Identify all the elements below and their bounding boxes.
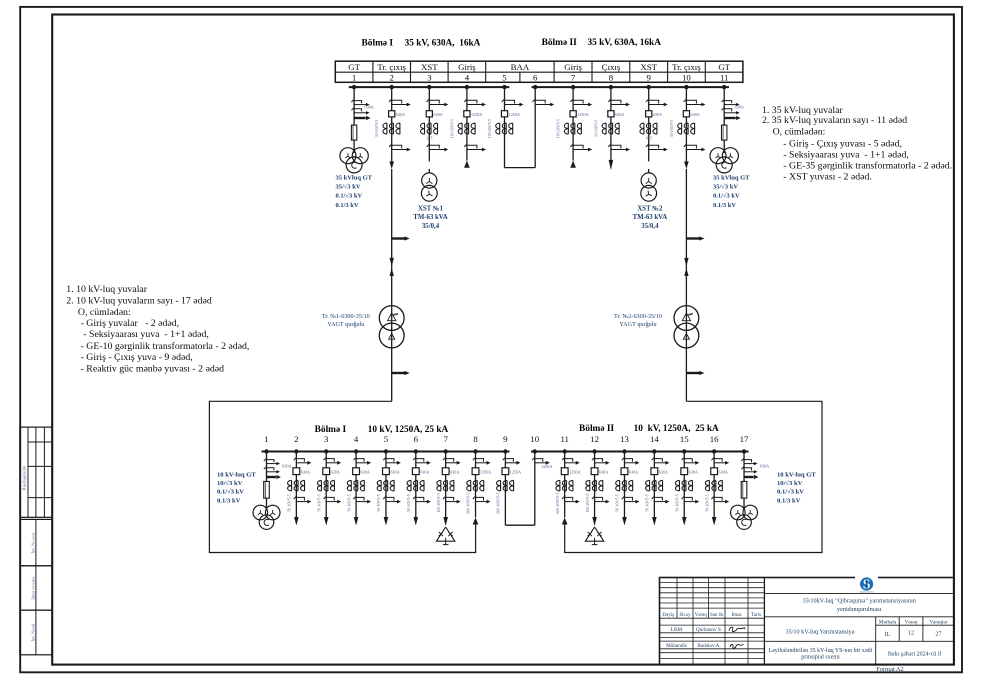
svg-text:Format A2: Format A2 <box>876 666 904 673</box>
svg-text:İmza: İmza <box>732 612 743 618</box>
svg-text:100-200/5-5: 100-200/5-5 <box>437 493 441 512</box>
svg-text:- Reaktiv güc mənbə yuvası - 2: - Reaktiv güc mənbə yuvası - 2 ədəd <box>81 364 224 375</box>
svg-text:10: 10 <box>682 73 691 83</box>
svg-text:35/0,4: 35/0,4 <box>641 223 659 230</box>
svg-text:Sən №: Sən № <box>710 612 724 618</box>
svg-text:10 kV, 1250A, 25 kA: 10 kV, 1250A, 25 kA <box>634 424 719 434</box>
svg-text:50-100/5-5: 50-100/5-5 <box>288 494 292 511</box>
svg-text:İL: İL <box>885 631 891 638</box>
svg-text:15: 15 <box>680 434 689 444</box>
svg-text:50-100/5-5: 50-100/5-5 <box>317 494 321 511</box>
svg-text:0.1/√3 kV: 0.1/√3 kV <box>713 192 740 200</box>
svg-text:630A: 630A <box>615 112 624 117</box>
svg-text:Bölmə II: Bölmə II <box>579 424 615 434</box>
svg-text:10 kV-luq GT: 10 kV-luq GT <box>777 472 816 479</box>
svg-text:TM-63 kVA: TM-63 kVA <box>413 214 448 221</box>
svg-text:2: 2 <box>294 434 298 444</box>
svg-text:2: 2 <box>389 73 393 83</box>
svg-text:17: 17 <box>740 434 749 444</box>
svg-text:- Seksiyaarası yuva - 1+1 ədə: - Seksiyaarası yuva - 1+1 ədəd, <box>783 150 909 161</box>
svg-text:50-100/5-5: 50-100/5-5 <box>675 494 679 511</box>
svg-text:9: 9 <box>646 73 651 83</box>
svg-text:O, cümlədən:: O, cümlədən: <box>78 307 131 318</box>
svg-text:Çıxış: Çıxış <box>602 62 621 72</box>
svg-text:30-100/5-5: 30-100/5-5 <box>670 120 674 137</box>
svg-text:Mühəndis: Mühəndis <box>666 643 687 649</box>
svg-text:Sh.sy: Sh.sy <box>680 613 691 618</box>
svg-text:630A: 630A <box>365 105 374 110</box>
svg-text:10/5: 10/5 <box>426 137 433 141</box>
svg-text:Vərəq: Vərəq <box>695 613 708 618</box>
svg-text:630A: 630A <box>396 112 405 117</box>
svg-text:100-200/5-5: 100-200/5-5 <box>586 493 590 512</box>
svg-text:30-100/5-5: 30-100/5-5 <box>594 120 598 137</box>
svg-text:Tr. №2-6300-35/10: Tr. №2-6300-35/10 <box>614 313 662 320</box>
svg-text:Bədəlov A.: Bədəlov A. <box>697 643 720 649</box>
svg-text:0.1/√3 kV: 0.1/√3 kV <box>217 488 244 496</box>
svg-text:XST: XST <box>640 62 657 72</box>
svg-text:Dəyiş: Dəyiş <box>662 613 674 618</box>
svg-text:630A: 630A <box>390 469 399 474</box>
svg-text:630A: 630A <box>719 469 728 474</box>
svg-text:Bölmə I: Bölmə I <box>315 425 347 435</box>
svg-text:1250A: 1250A <box>569 469 580 474</box>
svg-text:YAGT qurğulu: YAGT qurğulu <box>619 321 656 328</box>
svg-text:Mərhələ: Mərhələ <box>879 620 897 626</box>
svg-text:1250A: 1250A <box>471 112 482 117</box>
svg-text:1: 1 <box>352 73 356 83</box>
svg-text:12: 12 <box>908 631 914 637</box>
svg-text:630A: 630A <box>760 464 769 469</box>
svg-text:27: 27 <box>935 632 941 638</box>
svg-text:11: 11 <box>720 73 728 83</box>
svg-text:- Giriş - Çıxış yuvası - 5 ədə: - Giriş - Çıxış yuvası - 5 ədəd, <box>783 139 902 150</box>
svg-text:4: 4 <box>354 434 359 444</box>
svg-text:35 kV, 630A, 16kA: 35 kV, 630A, 16kA <box>405 39 481 49</box>
svg-text:35/√3 kV: 35/√3 kV <box>713 183 738 191</box>
svg-text:630A: 630A <box>282 464 291 469</box>
svg-text:7: 7 <box>571 73 576 83</box>
svg-text:Bakı şəhəri 2024-cü il: Bakı şəhəri 2024-cü il <box>888 651 941 657</box>
svg-text:1250A: 1250A <box>510 469 521 474</box>
svg-text:Layihələndirilən 35 kV-luq YS-: Layihələndirilən 35 kV-luq YS-nın bir xə… <box>768 648 872 654</box>
svg-text:0.1/√3 kV: 0.1/√3 kV <box>336 192 363 200</box>
svg-text:630A: 630A <box>653 112 662 117</box>
svg-text:6: 6 <box>414 434 419 444</box>
svg-text:- XST yuvası - 2 ədəd.: - XST yuvası - 2 ədəd. <box>783 172 872 183</box>
svg-text:GT: GT <box>348 62 360 72</box>
svg-text:Bölmə II: Bölmə II <box>542 38 578 48</box>
svg-text:13: 13 <box>620 434 629 444</box>
svg-text:3: 3 <box>427 73 432 83</box>
svg-text:4: 4 <box>465 73 470 83</box>
svg-text:5: 5 <box>502 73 507 83</box>
svg-text:35/√3 kV: 35/√3 kV <box>336 183 361 191</box>
svg-text:630A: 630A <box>599 469 608 474</box>
svg-text:LBM: LBM <box>671 627 683 633</box>
svg-text:16: 16 <box>710 434 719 444</box>
svg-text:50-100/5-5: 50-100/5-5 <box>377 494 381 511</box>
svg-text:600-1000/5-5: 600-1000/5-5 <box>556 492 560 513</box>
svg-text:0.1/3 kV: 0.1/3 kV <box>336 202 359 209</box>
svg-text:GT: GT <box>718 62 730 72</box>
svg-text:35/10 kV-luq Yarımstansiya: 35/10 kV-luq Yarımstansiya <box>785 629 854 636</box>
svg-text:BAA: BAA <box>511 62 530 72</box>
svg-text:- Seksiyaarası yuva - 1+1 ədə: - Seksiyaarası yuva - 1+1 ədəd, <box>83 329 209 340</box>
svg-text:Vərəq: Vərəq <box>905 620 918 626</box>
svg-text:Qurbanov S.: Qurbanov S. <box>696 627 722 633</box>
svg-text:2. 35 kV-luq yuvaların sayı -: 2. 35 kV-luq yuvaların sayı - 11 ədəd <box>762 115 907 126</box>
svg-text:50-100/5-5: 50-100/5-5 <box>347 494 351 511</box>
svg-text:Tr. №1-6300-35/10: Tr. №1-6300-35/10 <box>322 313 370 320</box>
svg-text:8: 8 <box>609 73 614 83</box>
svg-text:35 kVluq GT: 35 kVluq GT <box>713 174 750 181</box>
svg-text:630A: 630A <box>629 469 638 474</box>
svg-text:Tarix: Tarix <box>751 613 762 618</box>
svg-text:100-200/5-5: 100-200/5-5 <box>488 119 492 138</box>
svg-text:100-200/5-5: 100-200/5-5 <box>450 119 454 138</box>
svg-text:30-100/5-5: 30-100/5-5 <box>375 120 379 137</box>
svg-text:50-100/5-5: 50-100/5-5 <box>705 494 709 511</box>
svg-text:10/√3 kV: 10/√3 kV <box>217 479 243 487</box>
svg-text:7: 7 <box>443 434 448 444</box>
svg-text:Razılaşdırılıb: Razılaşdırılıb <box>22 465 27 490</box>
svg-text:9: 9 <box>503 434 508 444</box>
svg-text:50-100/5-5: 50-100/5-5 <box>616 494 620 511</box>
svg-text:8: 8 <box>473 434 478 444</box>
svg-text:35 kVluq GT: 35 kVluq GT <box>336 174 373 181</box>
svg-text:630A: 630A <box>659 469 668 474</box>
svg-text:0.1/3 kV: 0.1/3 kV <box>217 497 241 504</box>
svg-text:630A: 630A <box>433 112 442 117</box>
svg-text:TM-63 kVA: TM-63 kVA <box>633 214 668 221</box>
svg-text:10 kV-luq GT: 10 kV-luq GT <box>217 472 256 479</box>
svg-text:- Giriş - Çıxış yuva - 9 ədəd,: - Giriş - Çıxış yuva - 9 ədəd, <box>81 352 193 363</box>
svg-text:İnv. №əsli: İnv. №əsli <box>30 623 35 642</box>
svg-text:600-1000/5-5: 600-1000/5-5 <box>467 492 471 513</box>
svg-text:1: 1 <box>264 434 268 444</box>
svg-text:Tr. çıxış: Tr. çıxış <box>377 62 406 72</box>
svg-text:630A: 630A <box>450 469 459 474</box>
svg-text:0.1/3 kV: 0.1/3 kV <box>713 202 736 209</box>
svg-text:10: 10 <box>530 434 539 444</box>
svg-text:100-200/5-5: 100-200/5-5 <box>557 119 561 138</box>
svg-text:35/0,4: 35/0,4 <box>422 223 440 230</box>
svg-text:O, cümlədən:: O, cümlədən: <box>773 127 826 138</box>
svg-text:1250A: 1250A <box>509 112 520 117</box>
svg-text:630A: 630A <box>691 112 700 117</box>
svg-text:XST: XST <box>421 62 438 72</box>
svg-text:10 kV, 1250A, 25 kA: 10 kV, 1250A, 25 kA <box>368 425 449 435</box>
svg-text:630A: 630A <box>331 469 340 474</box>
svg-text:XST №1: XST №1 <box>418 206 444 213</box>
svg-text:630A: 630A <box>360 469 369 474</box>
svg-text:630A: 630A <box>735 105 744 110</box>
svg-text:10/5: 10/5 <box>646 137 653 141</box>
svg-text:12: 12 <box>590 434 599 444</box>
svg-text:630A: 630A <box>689 469 698 474</box>
svg-text:- GE-35 gərginlik transformato: - GE-35 gərginlik transformatorla - 2 əd… <box>783 161 952 172</box>
svg-text:2. 10 kV-luq yuvaların sayı -: 2. 10 kV-luq yuvaların sayı - 17 ədəd <box>66 296 212 307</box>
svg-text:0.1/3 kV: 0.1/3 kV <box>777 497 801 504</box>
svg-text:Giriş: Giriş <box>564 62 582 72</box>
svg-text:yenidənqurulması: yenidənqurulması <box>837 606 882 613</box>
svg-text:11: 11 <box>560 434 568 444</box>
svg-text:10/√3 kV: 10/√3 kV <box>777 479 803 487</box>
svg-text:İnv. № əvəz: İnv. № əvəz <box>30 532 35 553</box>
svg-text:Vərəqlər: Vərəqlər <box>929 620 947 626</box>
svg-text:1250A: 1250A <box>577 112 588 117</box>
svg-text:0.1/√3 kV: 0.1/√3 kV <box>777 488 804 496</box>
svg-text:Tr. çıxış: Tr. çıxış <box>672 62 701 72</box>
svg-text:1. 10 kV-luq yuvalar: 1. 10 kV-luq yuvalar <box>66 284 147 295</box>
svg-text:630A: 630A <box>301 469 310 474</box>
svg-text:35\10kV-luq "Qibrəqumə" yarıms: 35\10kV-luq "Qibrəqumə" yarımstansiyasın… <box>802 598 915 605</box>
svg-text:Giriş: Giriş <box>458 62 476 72</box>
svg-text:İmza və tarix: İmza və tarix <box>30 576 35 600</box>
svg-text:YAGT qurğulu: YAGT qurğulu <box>327 321 364 328</box>
svg-text:prinsipial sxemi: prinsipial sxemi <box>801 655 840 661</box>
svg-text:14: 14 <box>650 434 659 444</box>
svg-text:6: 6 <box>533 73 538 83</box>
svg-text:50-100/5-5: 50-100/5-5 <box>646 494 650 511</box>
svg-text:630A: 630A <box>420 469 429 474</box>
svg-text:- GE-10 gərginlik transformato: - GE-10 gərginlik transformatorla - 2 əd… <box>81 341 250 352</box>
svg-text:Bölmə I: Bölmə I <box>362 39 394 49</box>
svg-text:1250A: 1250A <box>541 464 552 469</box>
svg-text:1250A: 1250A <box>480 469 491 474</box>
svg-text:50-100/5-5: 50-100/5-5 <box>407 494 411 511</box>
svg-text:600-1000/5-5: 600-1000/5-5 <box>497 492 501 513</box>
svg-text:3: 3 <box>324 434 329 444</box>
svg-text:XST №2: XST №2 <box>637 206 663 213</box>
svg-text:- Giriş yuvalar - 2 ədəd,: - Giriş yuvalar - 2 ədəd, <box>81 318 179 329</box>
svg-text:5: 5 <box>384 434 389 444</box>
svg-text:35 kV, 630A, 16kA: 35 kV, 630A, 16kA <box>587 38 661 48</box>
